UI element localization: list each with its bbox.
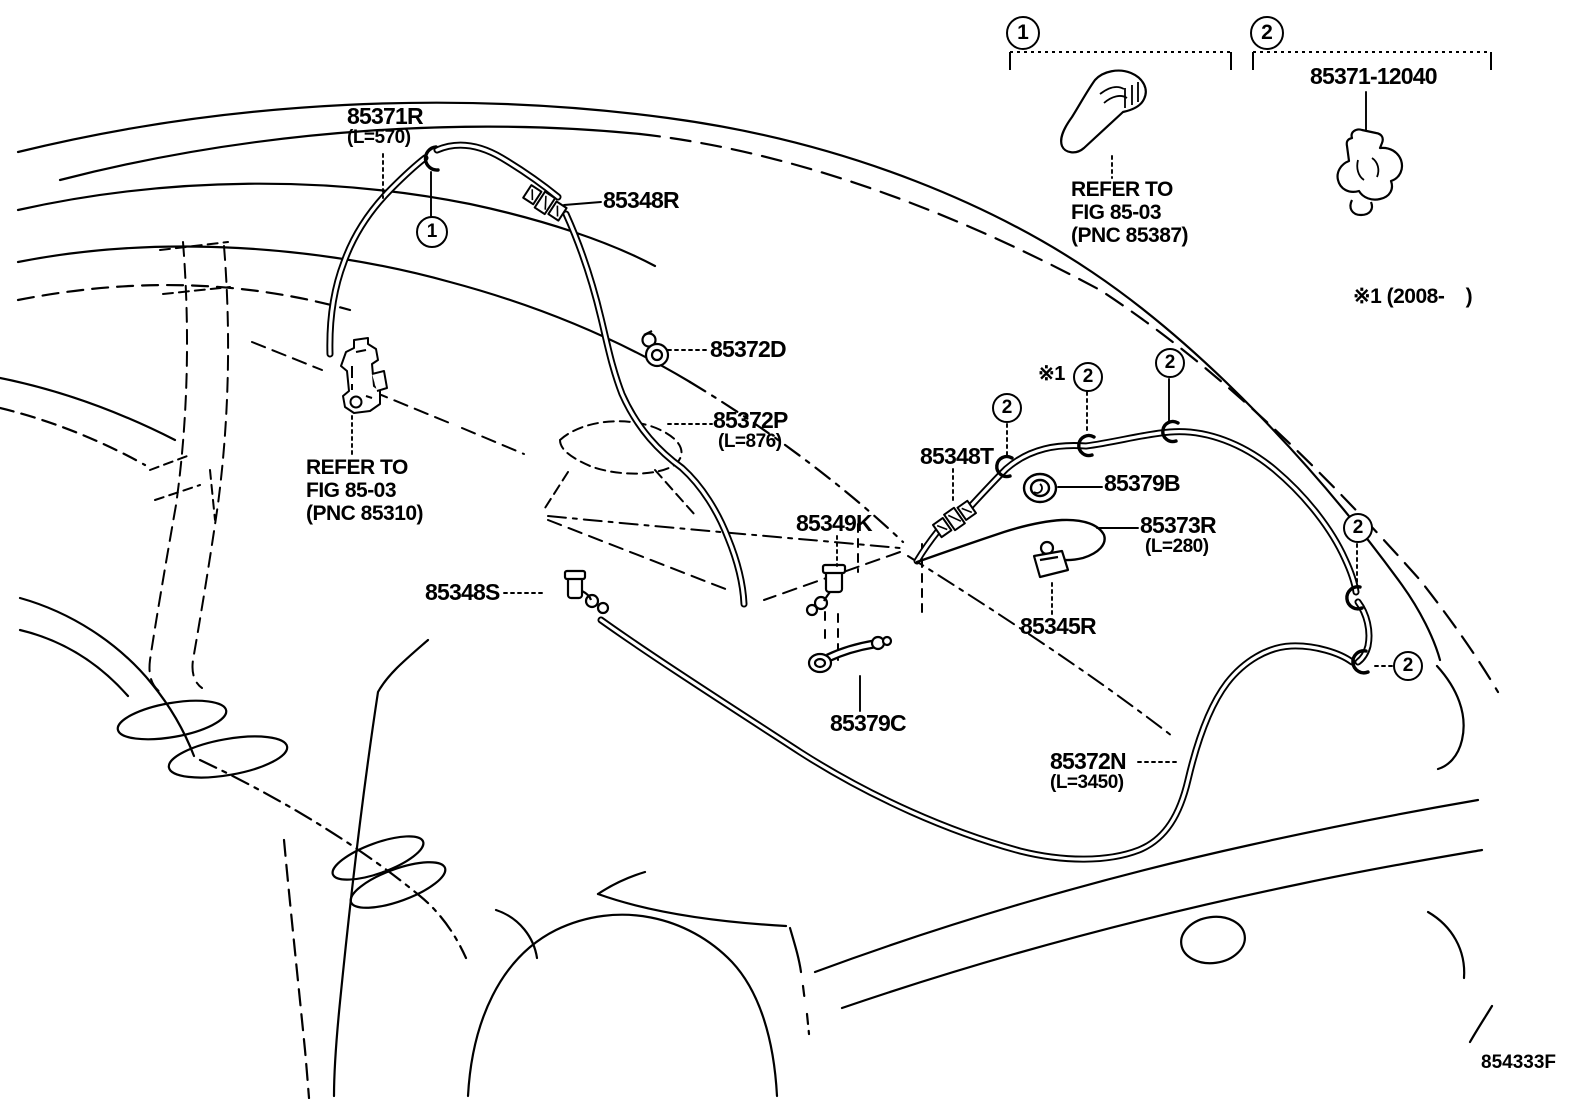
part-number: 85348S [425,580,500,604]
part-label-85372p: 85372P (L=876) [713,408,788,452]
part-number: 85372D [710,337,786,361]
diagram-artwork [0,0,1592,1099]
part-number: 85345R [1020,614,1096,638]
part-label-85349k: 85349K [796,511,872,535]
refer-line: (PNC 85387) [1071,224,1188,247]
callout-number: 2 [1353,517,1364,539]
clamp-85345r-art [1034,542,1068,577]
callout-2-clip-b: 2 [1073,362,1103,392]
part-label-85372n: 85372N (L=3450) [1050,749,1126,793]
washer-pump-art [341,338,387,413]
refer-note-nozzle: REFER TO FIG 85-03 (PNC 85387) [1071,178,1188,247]
elbow-85348s-art [565,571,608,613]
clip-85372d-art [643,331,669,366]
callout-1-roof-hose: 1 [416,216,448,248]
note-ref-mark: ※1 [1038,361,1065,386]
refer-line: FIG 85-03 [1071,201,1188,224]
callout-number: 2 [1403,655,1414,677]
parts-diagram-canvas: 1 1 2 2 2 2 2 2 ※1 85371R (L=570) 85348R… [0,0,1592,1099]
refer-note-pump: REFER TO FIG 85-03 (PNC 85310) [306,456,423,525]
part-length: (L=280) [1145,537,1216,557]
leader-lines [352,92,1392,762]
part-length: (L=3450) [1050,773,1126,793]
callout-number: 2 [1261,21,1273,45]
hose-85372n [601,432,1369,860]
part-label-85371r: 85371R (L=570) [347,104,423,148]
part-number: 85379C [830,711,906,735]
part-number: 85349K [796,511,872,535]
part-label-85345r: 85345R [1020,614,1096,638]
elbow-85349k-art [807,565,845,615]
callout-number: 2 [1002,397,1013,419]
legend-nozzle-art [1061,71,1146,153]
part-length: (L=876) [718,432,788,452]
part-label-85372d: 85372D [710,337,786,361]
grommet-85379b-art [1024,474,1056,502]
part-label-85379b: 85379B [1104,471,1180,495]
joint-85348t-art [932,499,977,539]
callout-number: 2 [1083,366,1094,388]
part-label-85348r: 85348R [603,188,679,212]
callout-2-legend: 2 [1250,16,1284,50]
part-number: 85379B [1104,471,1180,495]
refer-line: (PNC 85310) [306,502,423,525]
callout-2-clip-e: 2 [1393,651,1423,681]
refer-line: REFER TO [1071,178,1188,201]
note-model-year: ※1 (2008- ) [1353,284,1472,309]
part-number: 85373R [1140,513,1216,537]
legend-clip-art [1338,129,1402,215]
callout-2-clip-c: 2 [1155,348,1185,378]
part-number: 85348R [603,188,679,212]
callout-2-clip-a: 2 [992,393,1022,423]
callout-number: 1 [427,221,438,243]
nozzle-85379c-art [809,637,891,672]
part-number: 85371-12040 [1310,64,1434,88]
part-label-85379c: 85379C [830,711,906,735]
callout-number: 1 [1017,21,1029,45]
refer-line: REFER TO [306,456,423,479]
part-label-85348t: 85348T [920,444,993,468]
callout-1-legend: 1 [1006,16,1040,50]
part-length: (L=570) [347,128,423,148]
part-label-85373r: 85373R (L=280) [1140,513,1216,557]
part-label-85371-12040: 85371-12040 [1310,64,1434,88]
figure-code: 854333F [1481,1052,1556,1074]
part-number: 85372N [1050,749,1126,773]
part-number: 85348T [920,444,993,468]
part-number: 85372P [713,408,788,432]
callout-2-clip-d: 2 [1343,513,1373,543]
hose-hook-clips [425,147,1368,673]
part-label-85348s: 85348S [425,580,500,604]
callout-number: 2 [1165,352,1176,374]
refer-line: FIG 85-03 [306,479,423,502]
hose-85371r [330,145,558,354]
part-number: 85371R [347,104,423,128]
